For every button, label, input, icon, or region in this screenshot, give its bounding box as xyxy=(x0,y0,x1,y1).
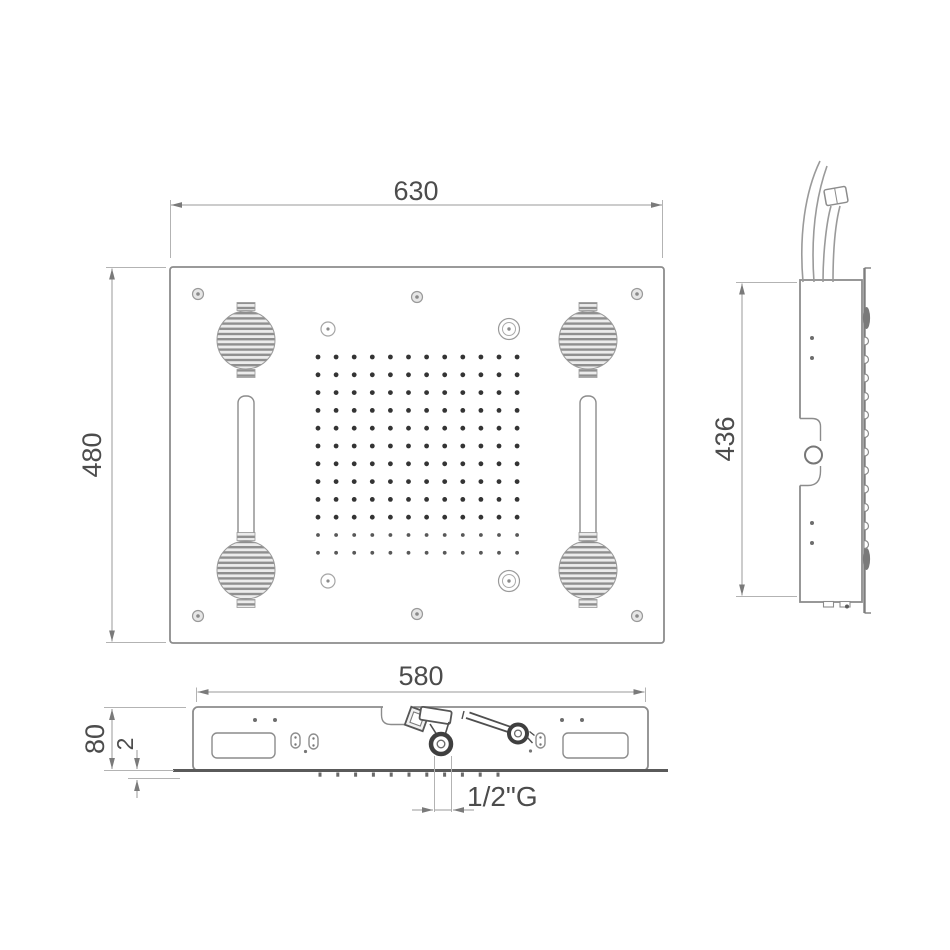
nozzle-dot xyxy=(370,497,375,502)
nozzle-dot xyxy=(388,408,393,413)
nozzle-dot xyxy=(406,372,411,377)
nozzle-dot xyxy=(407,533,411,537)
nozzle-dot xyxy=(388,372,393,377)
nozzle-dot xyxy=(515,426,520,431)
nozzle-dot xyxy=(461,551,465,555)
nozzle-dot xyxy=(370,426,375,431)
nozzle-tick xyxy=(461,773,464,777)
nozzle-dot xyxy=(316,390,321,395)
nozzle-tick xyxy=(336,773,339,777)
nozzle-dot xyxy=(352,515,357,520)
nozzle-dot xyxy=(316,551,320,555)
speaker-tab xyxy=(237,303,255,311)
nozzle-dot xyxy=(334,390,339,395)
nozzle-tick xyxy=(390,773,393,777)
nozzle-dot xyxy=(515,461,520,466)
nozzle-bump xyxy=(865,356,869,364)
nozzle-dot xyxy=(352,461,357,466)
nozzle-bump xyxy=(865,485,869,493)
nozzle-dot xyxy=(442,497,447,502)
side-housing-outline xyxy=(800,280,862,602)
shower-head-technical-drawing: 630 480 436 580 80 xyxy=(0,0,950,950)
speaker-tab xyxy=(579,533,597,541)
nozzle-dot xyxy=(424,372,429,377)
nozzle-dot xyxy=(424,355,429,360)
nozzle-dot xyxy=(479,515,484,520)
nozzle-dot xyxy=(442,372,447,377)
nozzle-dot xyxy=(388,390,393,395)
nozzle-dot xyxy=(316,497,321,502)
nozzle-dot xyxy=(460,372,465,377)
nozzle-tick xyxy=(408,773,411,777)
nozzle-dot xyxy=(316,444,321,449)
nozzle-dot xyxy=(497,497,502,502)
nozzle-dot xyxy=(334,444,339,449)
nozzle-dot xyxy=(352,444,357,449)
section-depth-label: 80 xyxy=(80,724,110,754)
nozzle-bump xyxy=(865,541,869,549)
nozzle-bump xyxy=(865,504,869,512)
speaker-tab xyxy=(579,370,597,378)
nozzle-dot xyxy=(316,515,321,520)
nozzle-dot xyxy=(479,551,483,555)
nozzle-dot xyxy=(442,479,447,484)
nozzle-dot xyxy=(352,479,357,484)
nozzle-dot xyxy=(334,551,338,555)
nozzle-dot xyxy=(425,551,429,555)
nozzle-dot xyxy=(442,390,447,395)
hose-line xyxy=(823,206,831,282)
nozzle-dot xyxy=(442,408,447,413)
nozzle-dot xyxy=(334,533,338,537)
nozzle-dot xyxy=(334,497,339,502)
nozzle-dot xyxy=(316,372,321,377)
nozzle-dot xyxy=(388,426,393,431)
nozzle-dot xyxy=(424,426,429,431)
nozzle-dot xyxy=(334,408,339,413)
section-dot xyxy=(560,718,564,722)
nozzle-dot xyxy=(352,497,357,502)
nozzle-dot xyxy=(370,461,375,466)
nozzle-dot xyxy=(370,390,375,395)
speaker-circle xyxy=(217,311,275,369)
nozzle-dot xyxy=(407,551,411,555)
dimension-480: 480 xyxy=(77,268,166,643)
screw-center xyxy=(415,295,419,299)
nozzle-bump xyxy=(865,337,869,345)
nozzle-dot xyxy=(460,408,465,413)
large-ring-dot xyxy=(507,579,510,582)
screw-center xyxy=(196,292,200,296)
nozzle-dot xyxy=(515,479,520,484)
screw-center xyxy=(415,612,419,616)
side-view xyxy=(798,161,871,613)
nozzle-dot xyxy=(370,515,375,520)
nozzle-dot xyxy=(424,390,429,395)
nozzle-dot xyxy=(424,497,429,502)
small-ring-dot xyxy=(326,579,329,582)
nozzle-dot xyxy=(460,444,465,449)
hose-connector-nut xyxy=(824,186,848,206)
nozzle-dot xyxy=(479,461,484,466)
nozzle-dot xyxy=(406,497,411,502)
nozzle-dot xyxy=(460,497,465,502)
housing-dot xyxy=(810,336,814,340)
speaker-circle xyxy=(217,541,275,599)
nozzle-dot xyxy=(352,533,356,537)
nozzle-dot xyxy=(352,372,357,377)
nozzle-dot xyxy=(497,533,501,537)
nozzle-bump xyxy=(865,448,869,456)
nozzle-dot xyxy=(388,355,393,360)
nozzle-dot xyxy=(388,497,393,502)
nozzle-dot xyxy=(460,355,465,360)
front-width-label: 630 xyxy=(393,176,438,206)
nozzle-dot xyxy=(352,426,357,431)
nozzle-dot xyxy=(316,355,321,360)
flange-thickness-label: 2 xyxy=(112,738,138,751)
nozzle-dot xyxy=(515,551,519,555)
speaker-circle xyxy=(559,311,617,369)
speaker-tab xyxy=(579,303,597,311)
nozzle-tick xyxy=(319,773,322,777)
dimension-2: 2 xyxy=(112,738,180,798)
dimension-630: 630 xyxy=(171,176,663,258)
nozzle-dot xyxy=(424,461,429,466)
nozzle-dot xyxy=(497,390,502,395)
nozzle-dot xyxy=(442,461,447,466)
nozzle-dot xyxy=(370,533,374,537)
nozzle-dot xyxy=(479,390,484,395)
nozzle-dot xyxy=(389,533,393,537)
screw-center xyxy=(635,292,639,296)
section-view xyxy=(173,705,668,777)
nozzle-dot xyxy=(352,355,357,360)
connection-size-label: 1/2"G xyxy=(467,781,538,812)
nozzle-bump xyxy=(865,411,869,419)
nozzle-dot xyxy=(479,426,484,431)
nozzle-dot xyxy=(497,479,502,484)
bottom-tab-dot xyxy=(845,605,849,609)
dimension-580: 580 xyxy=(197,661,646,702)
speaker-bulge-bottom xyxy=(863,548,870,570)
nozzle-dot xyxy=(460,515,465,520)
screw-center xyxy=(635,614,639,618)
nozzle-dot xyxy=(479,533,483,537)
nozzle-dot xyxy=(388,515,393,520)
cable-line xyxy=(813,166,827,282)
nozzle-dot xyxy=(316,426,321,431)
nozzle-dot xyxy=(424,408,429,413)
nozzle-dot xyxy=(334,515,339,520)
technical-drawing-page: 630 480 436 580 80 xyxy=(0,0,950,950)
nozzle-dot xyxy=(370,551,374,555)
nozzle-bump xyxy=(865,393,869,401)
nozzle-dot xyxy=(515,515,520,520)
nozzle-dot xyxy=(515,390,520,395)
nozzle-dot xyxy=(479,479,484,484)
nozzle-dot xyxy=(442,444,447,449)
nozzle-tick xyxy=(497,773,500,777)
nozzle-dot xyxy=(460,479,465,484)
nozzle-dot xyxy=(461,533,465,537)
nozzle-dot xyxy=(352,551,356,555)
nozzle-dot xyxy=(406,479,411,484)
nozzle-dot xyxy=(442,426,447,431)
nozzle-dot xyxy=(352,408,357,413)
nozzle-dot xyxy=(515,355,520,360)
hose-line xyxy=(833,206,840,282)
nozzle-dot xyxy=(316,479,321,484)
nozzle-dot xyxy=(406,515,411,520)
section-width-label: 580 xyxy=(398,661,443,691)
nozzle-dot xyxy=(497,355,502,360)
small-ring-dot xyxy=(326,327,329,330)
nozzle-dot xyxy=(388,444,393,449)
housing-dot xyxy=(810,541,814,545)
speaker-tab xyxy=(579,600,597,608)
nozzle-dot xyxy=(406,390,411,395)
nozzle-dot xyxy=(334,372,339,377)
nozzle-dot xyxy=(389,551,393,555)
housing-dot xyxy=(810,521,814,525)
front-height-label: 480 xyxy=(77,432,107,477)
section-dot xyxy=(253,718,257,722)
nozzle-dot xyxy=(388,479,393,484)
nozzle-dot xyxy=(442,515,447,520)
cable-line xyxy=(802,161,820,282)
front-view xyxy=(170,267,664,643)
bottom-tab xyxy=(824,602,834,608)
nozzle-dot xyxy=(515,444,520,449)
nozzle-dot xyxy=(334,355,339,360)
nozzle-dot xyxy=(425,533,429,537)
nozzle-dot xyxy=(388,461,393,466)
nozzle-bump xyxy=(865,430,869,438)
nozzle-tick xyxy=(354,773,357,777)
nozzle-dot xyxy=(497,408,502,413)
nozzle-dot xyxy=(316,408,321,413)
nozzle-dot xyxy=(370,479,375,484)
dimension-436: 436 xyxy=(710,283,797,597)
nozzle-tick xyxy=(425,773,428,777)
side-height-label: 436 xyxy=(710,416,740,461)
nozzle-dot xyxy=(497,372,502,377)
nozzle-dot xyxy=(370,444,375,449)
nozzle-dot xyxy=(406,426,411,431)
nozzle-dot xyxy=(370,408,375,413)
nozzle-dot xyxy=(515,372,520,377)
section-nozzle-ticks xyxy=(319,773,500,777)
nozzle-dot xyxy=(424,444,429,449)
nozzle-dot xyxy=(316,461,321,466)
nozzle-tick xyxy=(479,773,482,777)
speaker-bulge-top xyxy=(863,307,870,329)
nozzle-tick xyxy=(372,773,375,777)
speaker-tab xyxy=(237,533,255,541)
nozzle-dot xyxy=(479,408,484,413)
large-ring-dot xyxy=(507,327,510,330)
nozzle-dot xyxy=(442,355,447,360)
section-dot xyxy=(580,718,584,722)
nozzle-dot xyxy=(334,479,339,484)
nozzle-dot xyxy=(334,426,339,431)
nozzle-bump xyxy=(865,374,869,382)
nozzle-dot xyxy=(406,461,411,466)
section-dot xyxy=(273,718,277,722)
nozzle-dot xyxy=(370,372,375,377)
speaker-tab xyxy=(237,600,255,608)
speaker-circle xyxy=(559,541,617,599)
nozzle-dot xyxy=(316,533,320,537)
nozzle-dot xyxy=(406,355,411,360)
nozzle-dot xyxy=(443,533,447,537)
nozzle-dot xyxy=(352,390,357,395)
nozzle-tick xyxy=(443,773,446,777)
nozzle-dot xyxy=(515,533,519,537)
nozzle-dot xyxy=(497,426,502,431)
nozzle-bump xyxy=(865,467,869,475)
hook-clip xyxy=(805,447,822,464)
nozzle-dot xyxy=(406,408,411,413)
screw-center xyxy=(196,614,200,618)
nozzle-dot xyxy=(406,444,411,449)
nozzle-dot xyxy=(334,461,339,466)
nozzle-dot xyxy=(479,372,484,377)
nozzle-dot xyxy=(370,355,375,360)
nozzle-dot xyxy=(497,461,502,466)
nozzle-dot xyxy=(515,408,520,413)
nozzle-bump xyxy=(865,522,869,530)
nozzle-dot xyxy=(479,444,484,449)
nozzle-dot xyxy=(424,479,429,484)
nozzle-dot xyxy=(515,497,520,502)
nozzle-dot xyxy=(424,515,429,520)
nozzle-dot xyxy=(479,497,484,502)
speaker-tab xyxy=(237,370,255,378)
supply-hoses xyxy=(802,161,848,282)
nozzle-dot xyxy=(460,390,465,395)
nozzle-dot xyxy=(479,355,484,360)
nozzle-dot xyxy=(497,444,502,449)
nozzle-dot xyxy=(460,426,465,431)
nozzle-dot xyxy=(443,551,447,555)
housing-dot xyxy=(810,356,814,360)
nozzle-dot xyxy=(460,461,465,466)
nozzle-dot xyxy=(497,551,501,555)
nozzle-dot xyxy=(497,515,502,520)
